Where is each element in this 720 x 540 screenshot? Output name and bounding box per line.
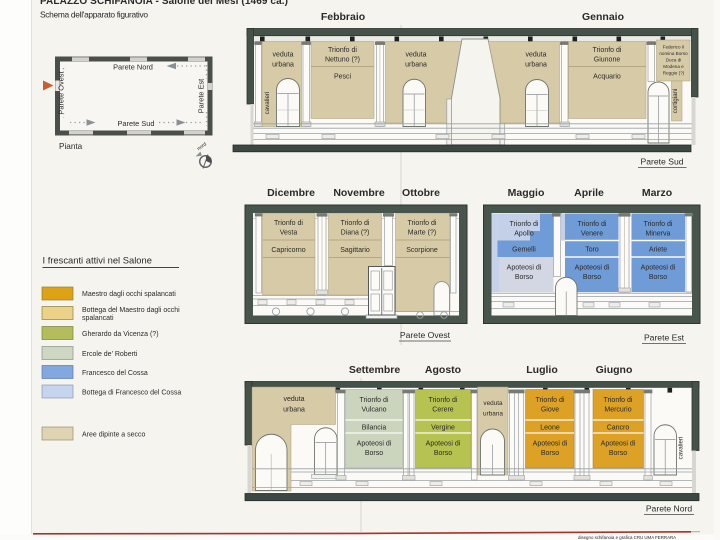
svg-text:Giugno: Giugno xyxy=(596,364,633,376)
svg-text:Scorpione: Scorpione xyxy=(406,247,438,254)
svg-text:Parete Ovest: Parete Ovest xyxy=(57,71,66,114)
svg-text:Borso: Borso xyxy=(515,274,533,281)
svg-text:Mercurio: Mercurio xyxy=(604,407,631,414)
svg-text:Reggio (?): Reggio (?) xyxy=(663,71,685,76)
svg-text:Luglio: Luglio xyxy=(526,364,558,376)
svg-text:Trionfo di: Trionfo di xyxy=(593,47,622,54)
svg-text:PALAZZO SCHIFANOIA - Salone de: PALAZZO SCHIFANOIA - Salone dei Mesi (14… xyxy=(40,0,288,7)
svg-text:Maestro dagli occhi spalancati: Maestro dagli occhi spalancati xyxy=(82,291,176,298)
svg-text:Parete Est: Parete Est xyxy=(197,79,206,114)
svg-text:Parete Est: Parete Est xyxy=(644,333,685,343)
svg-text:Aprile: Aprile xyxy=(574,187,604,199)
svg-text:Borso: Borso xyxy=(649,274,667,281)
svg-text:Giunone: Giunone xyxy=(594,57,621,64)
svg-text:Acquario: Acquario xyxy=(593,74,621,81)
svg-text:Novembre: Novembre xyxy=(333,187,385,199)
svg-text:Apoteosi di: Apoteosi di xyxy=(641,265,676,272)
svg-text:urbana: urbana xyxy=(283,407,305,414)
svg-text:Parete Ovest: Parete Ovest xyxy=(400,330,451,340)
svg-text:Parete Nord: Parete Nord xyxy=(646,504,693,514)
svg-text:Maggio: Maggio xyxy=(508,187,545,199)
svg-text:Venere: Venere xyxy=(581,231,603,238)
svg-text:Diana (?): Diana (?) xyxy=(341,230,370,237)
svg-text:Bottega del Maestro dagli occh: Bottega del Maestro dagli occhi xyxy=(82,307,180,314)
svg-text:Parete Nord: Parete Nord xyxy=(113,63,153,72)
svg-text:Ercole de' Roberti: Ercole de' Roberti xyxy=(82,351,138,358)
svg-text:Ariete: Ariete xyxy=(649,247,667,254)
svg-text:Cerere: Cerere xyxy=(432,407,454,414)
svg-text:Borso: Borso xyxy=(583,274,601,281)
svg-text:Sagittario: Sagittario xyxy=(340,247,370,254)
svg-text:Pesci: Pesci xyxy=(334,74,352,81)
svg-text:Cancro: Cancro xyxy=(607,425,630,432)
svg-text:Agosto: Agosto xyxy=(425,364,461,376)
svg-text:spalancati: spalancati xyxy=(82,315,114,322)
svg-text:Vesta: Vesta xyxy=(280,230,298,237)
svg-text:Toro: Toro xyxy=(585,247,599,254)
svg-text:Trionfo di: Trionfo di xyxy=(429,397,458,404)
svg-text:Borso: Borso xyxy=(434,450,452,457)
svg-text:urbana: urbana xyxy=(272,62,294,69)
svg-text:Minerva: Minerva xyxy=(646,231,671,238)
svg-text:cavalieri: cavalieri xyxy=(264,92,271,115)
svg-text:Federico II: Federico II xyxy=(663,45,685,50)
svg-text:Trionfo di: Trionfo di xyxy=(510,221,539,228)
svg-text:Trionfo di: Trionfo di xyxy=(644,221,673,228)
svg-text:Febbraio: Febbraio xyxy=(321,11,365,23)
svg-text:Parete Sud: Parete Sud xyxy=(641,157,684,167)
svg-text:cavalieri: cavalieri xyxy=(678,437,685,460)
svg-text:Parete Sud: Parete Sud xyxy=(118,119,155,128)
svg-text:Giove: Giove xyxy=(541,407,559,414)
svg-text:Borso: Borso xyxy=(541,450,559,457)
svg-text:veduta: veduta xyxy=(272,52,293,59)
svg-text:Trionfo di: Trionfo di xyxy=(578,221,607,228)
svg-text:Apoteosi di: Apoteosi di xyxy=(575,265,610,272)
svg-text:Gemelli: Gemelli xyxy=(512,247,536,254)
svg-text:Gennaio: Gennaio xyxy=(582,11,624,23)
svg-text:Pianta: Pianta xyxy=(59,142,83,151)
svg-text:veduta: veduta xyxy=(483,400,503,407)
svg-text:Trionfo di: Trionfo di xyxy=(341,220,370,227)
svg-text:I frescanti attivi nel Salone: I frescanti attivi nel Salone xyxy=(43,255,152,266)
svg-text:Trionfo di: Trionfo di xyxy=(604,397,633,404)
svg-text:Duca di: Duca di xyxy=(666,58,682,63)
svg-text:Francesco del Cossa: Francesco del Cossa xyxy=(82,370,148,377)
svg-text:Trionfo di: Trionfo di xyxy=(328,47,357,54)
svg-text:veduta: veduta xyxy=(283,396,304,403)
svg-text:veduta: veduta xyxy=(525,52,546,59)
svg-text:Bottega di Francesco del Cossa: Bottega di Francesco del Cossa xyxy=(82,390,181,397)
svg-text:Apoteosi di: Apoteosi di xyxy=(507,265,542,272)
svg-text:Settembre: Settembre xyxy=(349,364,401,376)
svg-text:Apoteosi di: Apoteosi di xyxy=(601,441,636,448)
svg-text:Ottobre: Ottobre xyxy=(402,187,440,199)
svg-text:nomina Borso: nomina Borso xyxy=(659,51,688,56)
svg-text:Apoteosi di: Apoteosi di xyxy=(357,441,392,448)
svg-text:Modena e: Modena e xyxy=(663,64,684,69)
svg-text:Vergine: Vergine xyxy=(431,425,455,432)
svg-text:veduta: veduta xyxy=(405,52,426,59)
svg-text:urbana: urbana xyxy=(525,62,547,69)
svg-text:Apoteosi di: Apoteosi di xyxy=(426,441,461,448)
svg-text:Capricorno: Capricorno xyxy=(271,247,305,254)
svg-text:urbana: urbana xyxy=(483,411,503,418)
svg-text:Apoteosi di: Apoteosi di xyxy=(533,441,568,448)
svg-text:Bilancia: Bilancia xyxy=(362,425,387,432)
svg-text:Trionfo di: Trionfo di xyxy=(274,220,303,227)
svg-text:Trionfo di: Trionfo di xyxy=(408,220,437,227)
svg-text:cortigiani: cortigiani xyxy=(672,89,679,114)
svg-text:Vulcano: Vulcano xyxy=(361,407,386,414)
svg-text:Dicembre: Dicembre xyxy=(267,187,315,199)
svg-text:Nettuno (?): Nettuno (?) xyxy=(325,57,360,64)
svg-text:Borso: Borso xyxy=(609,450,627,457)
svg-text:Marte (?): Marte (?) xyxy=(408,230,436,237)
svg-text:Trionfo di: Trionfo di xyxy=(360,397,389,404)
svg-text:Marzo: Marzo xyxy=(642,187,672,199)
svg-text:disegno schifanoia e grafica C: disegno schifanoia e grafica CRU UMA FER… xyxy=(578,535,676,540)
svg-text:Schema dell'apparato figurativ: Schema dell'apparato figurativo xyxy=(40,10,148,20)
svg-text:Aree dipinte a secco: Aree dipinte a secco xyxy=(82,432,146,439)
svg-text:Leone: Leone xyxy=(540,425,560,432)
svg-text:urbana: urbana xyxy=(405,62,427,69)
svg-text:Gherardo da Vicenza (?): Gherardo da Vicenza (?) xyxy=(82,331,159,338)
svg-text:Trionfo di: Trionfo di xyxy=(536,397,565,404)
svg-text:Apollo: Apollo xyxy=(514,231,534,238)
svg-text:Borso: Borso xyxy=(365,450,383,457)
